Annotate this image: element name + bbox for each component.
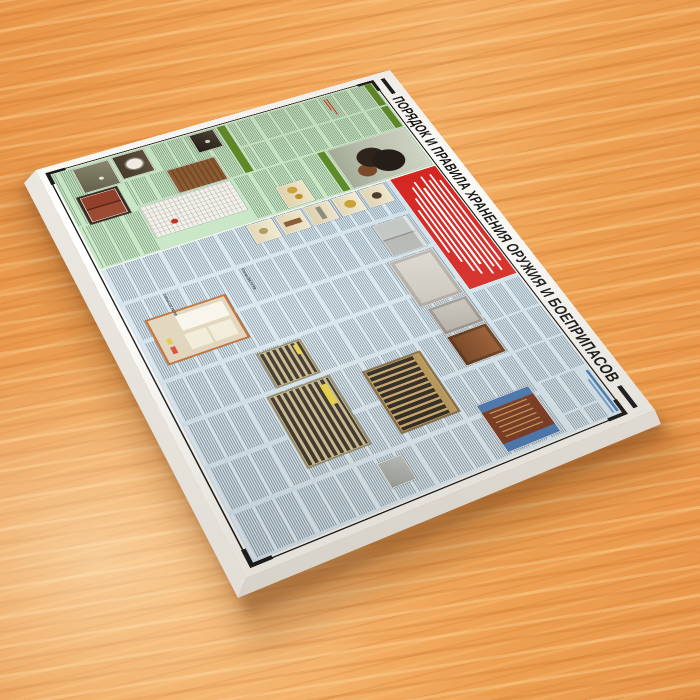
title-dash-left xyxy=(381,78,396,94)
scene: ПОРЯДОК И ПРАВИЛА ХРАНЕНИЯ ОРУЖИЯ И БОЕП… xyxy=(0,0,700,700)
title-dash-right xyxy=(617,385,638,408)
